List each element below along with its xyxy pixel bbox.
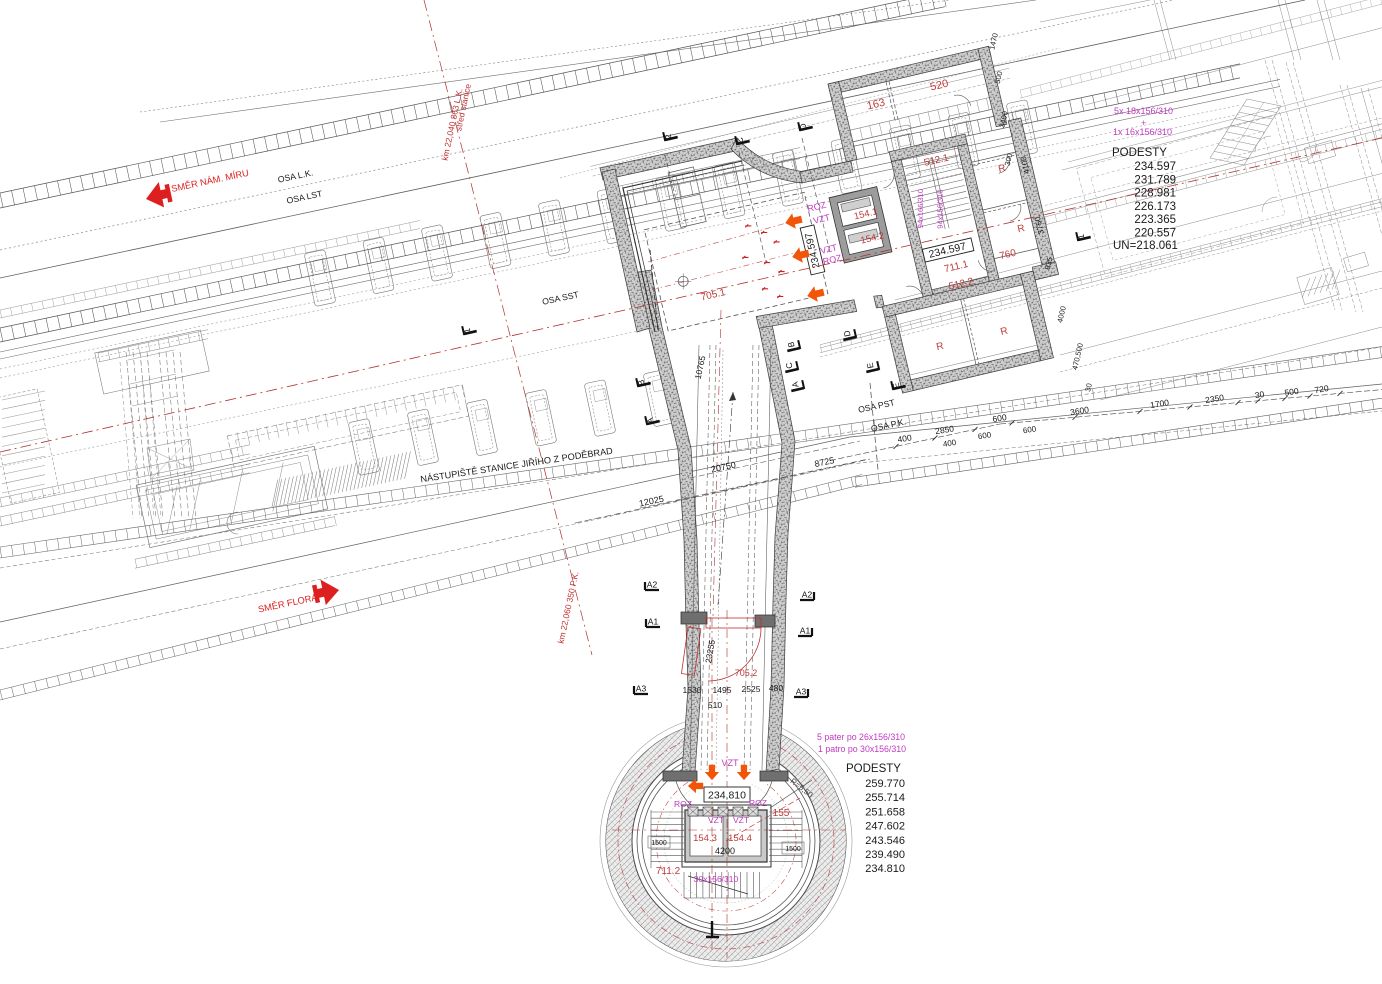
svg-text:VZT: VZT xyxy=(733,815,749,825)
svg-text:A1: A1 xyxy=(800,626,811,636)
svg-text:155: 155 xyxy=(773,808,790,819)
svg-text:234.597: 234.597 xyxy=(1134,161,1176,173)
svg-text:154.4: 154.4 xyxy=(728,833,752,844)
svg-text:UN=218.061: UN=218.061 xyxy=(1113,240,1178,252)
svg-text:259.770: 259.770 xyxy=(865,778,905,790)
svg-text:228.981: 228.981 xyxy=(1134,188,1176,200)
svg-text:234.810: 234.810 xyxy=(865,863,905,875)
svg-text:154.3: 154.3 xyxy=(693,833,717,844)
svg-text:234,810: 234,810 xyxy=(708,790,746,802)
svg-text:PODESTY: PODESTY xyxy=(846,763,901,775)
svg-text:1500: 1500 xyxy=(651,840,667,847)
svg-text:PODESTY: PODESTY xyxy=(1112,147,1167,159)
svg-text:VZT: VZT xyxy=(708,815,724,825)
svg-text:220.557: 220.557 xyxy=(1134,228,1176,240)
svg-text:5 pater po 26x156/310: 5 pater po 26x156/310 xyxy=(817,732,905,742)
svg-text:247.602: 247.602 xyxy=(865,821,905,833)
svg-text:5x 18x156/310: 5x 18x156/310 xyxy=(1114,106,1173,116)
svg-text:VZT: VZT xyxy=(722,758,740,768)
svg-text:94x156/310: 94x156/310 xyxy=(936,189,945,228)
svg-text:A3: A3 xyxy=(636,684,647,694)
svg-text:1530: 1530 xyxy=(683,685,702,695)
svg-text:223.365: 223.365 xyxy=(1134,214,1176,226)
svg-text:226.173: 226.173 xyxy=(1134,201,1176,213)
svg-text:255.714: 255.714 xyxy=(865,792,905,804)
svg-text:231.789: 231.789 xyxy=(1134,174,1176,186)
svg-text:243.546: 243.546 xyxy=(865,835,905,847)
svg-text:A2: A2 xyxy=(802,590,813,600)
svg-text:30: 30 xyxy=(1254,389,1265,400)
svg-text:711.2: 711.2 xyxy=(656,866,681,877)
svg-text:A2: A2 xyxy=(647,580,658,590)
svg-text:480: 480 xyxy=(769,683,783,693)
svg-text:510: 510 xyxy=(708,700,722,710)
svg-text:4200: 4200 xyxy=(715,846,735,856)
svg-text:705.2: 705.2 xyxy=(735,668,758,678)
svg-text:1 patro po 30x156/310: 1 patro po 30x156/310 xyxy=(818,744,906,754)
svg-text:2525: 2525 xyxy=(742,684,761,694)
svg-text:A1: A1 xyxy=(648,617,659,627)
svg-text:30x156/310: 30x156/310 xyxy=(694,874,739,884)
svg-text:1x 16x156/310: 1x 16x156/310 xyxy=(1113,127,1172,137)
svg-text:A3: A3 xyxy=(796,687,807,697)
svg-text:251.658: 251.658 xyxy=(865,806,905,818)
svg-text:94x166/310: 94x166/310 xyxy=(916,189,925,228)
svg-text:ROZ: ROZ xyxy=(674,799,692,809)
svg-text:ROZ: ROZ xyxy=(749,798,767,808)
svg-text:1495: 1495 xyxy=(713,685,732,695)
svg-text:1500: 1500 xyxy=(785,846,801,853)
svg-text:239.490: 239.490 xyxy=(865,849,905,861)
